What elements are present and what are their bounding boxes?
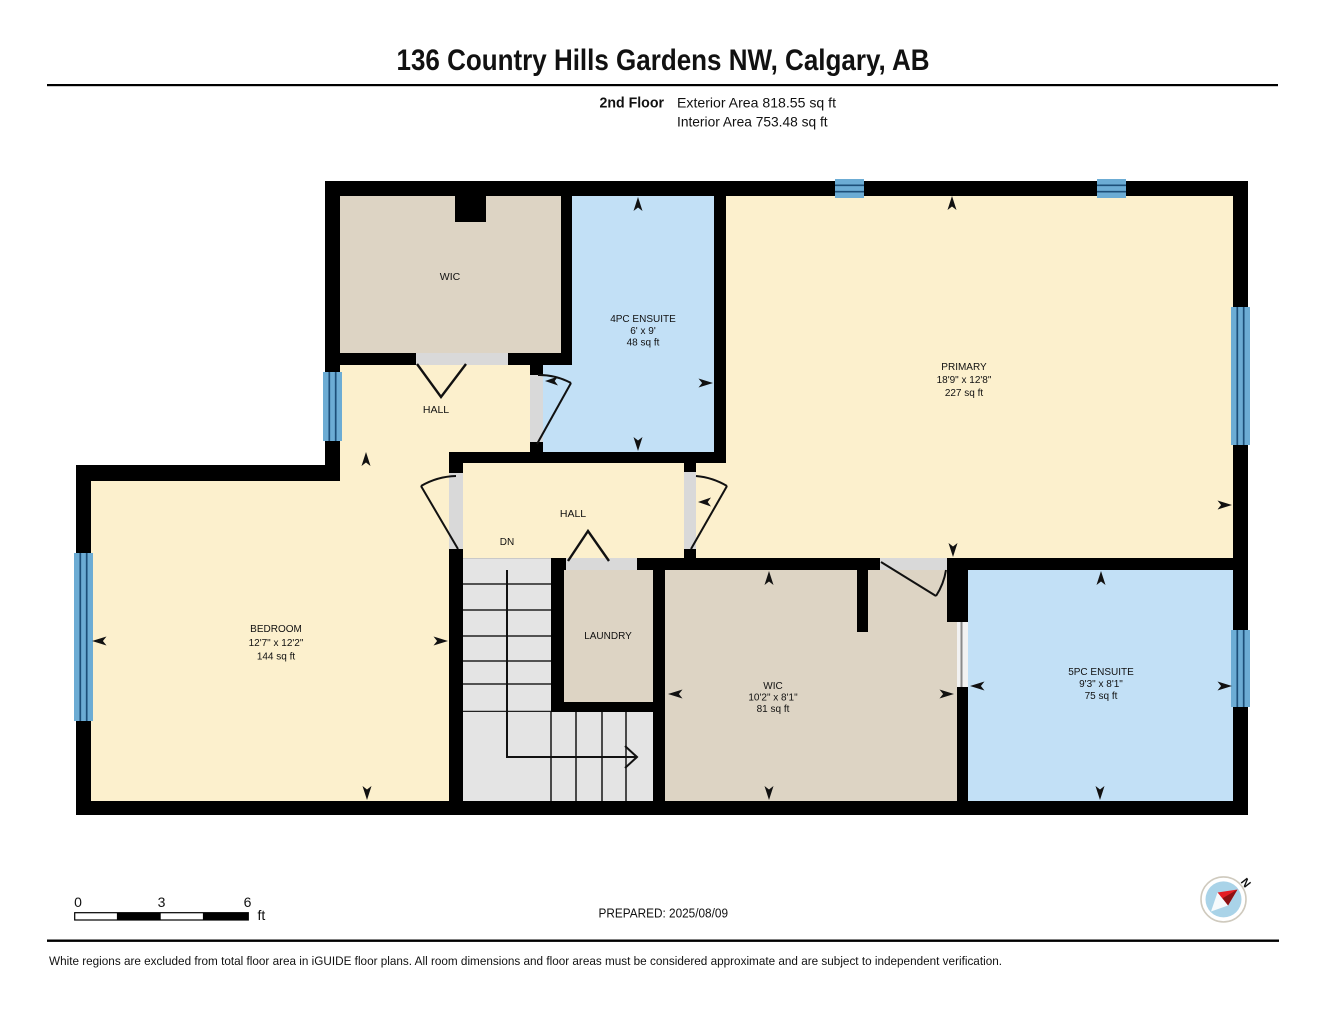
svg-text:75 sq ft: 75 sq ft [1085,691,1118,702]
svg-text:48 sq ft: 48 sq ft [627,338,660,349]
svg-text:9'3" x 8'1": 9'3" x 8'1" [1079,679,1123,690]
svg-text:BEDROOM: BEDROOM [250,624,302,635]
svg-text:18'9" x 12'8": 18'9" x 12'8" [937,375,992,386]
svg-text:ft: ft [258,907,266,923]
svg-text:LAUNDRY: LAUNDRY [584,631,632,642]
svg-text:227 sq ft: 227 sq ft [945,388,984,399]
svg-text:136 Country Hills Gardens NW,: 136 Country Hills Gardens NW, Calgary, A… [397,44,930,77]
svg-text:HALL: HALL [423,404,449,416]
svg-text:5PC ENSUITE: 5PC ENSUITE [1068,667,1134,678]
svg-text:HALL: HALL [560,508,586,520]
svg-text:10'2" x 8'1": 10'2" x 8'1" [748,693,798,704]
svg-text:4PC ENSUITE: 4PC ENSUITE [610,314,676,325]
svg-text:DN: DN [500,537,514,548]
svg-text:6' x 9': 6' x 9' [630,326,656,337]
svg-text:12'7" x 12'2": 12'7" x 12'2" [249,638,304,649]
svg-text:Interior Area 753.48 sq ft: Interior Area 753.48 sq ft [677,113,828,129]
svg-text:PREPARED: 2025/08/09: PREPARED: 2025/08/09 [599,906,729,921]
svg-text:144 sq ft: 144 sq ft [257,652,296,663]
svg-text:0: 0 [74,894,82,910]
svg-text:6: 6 [244,894,252,910]
svg-text:3: 3 [158,894,166,910]
svg-text:WIC: WIC [763,681,782,692]
svg-text:2nd Floor: 2nd Floor [600,96,665,112]
svg-text:Exterior Area 818.55 sq ft: Exterior Area 818.55 sq ft [677,95,836,111]
svg-text:81 sq ft: 81 sq ft [757,704,790,715]
svg-text:WIC: WIC [440,271,461,283]
svg-text:PRIMARY: PRIMARY [941,362,987,373]
svg-text:White regions are excluded fro: White regions are excluded from total fl… [49,954,1002,968]
